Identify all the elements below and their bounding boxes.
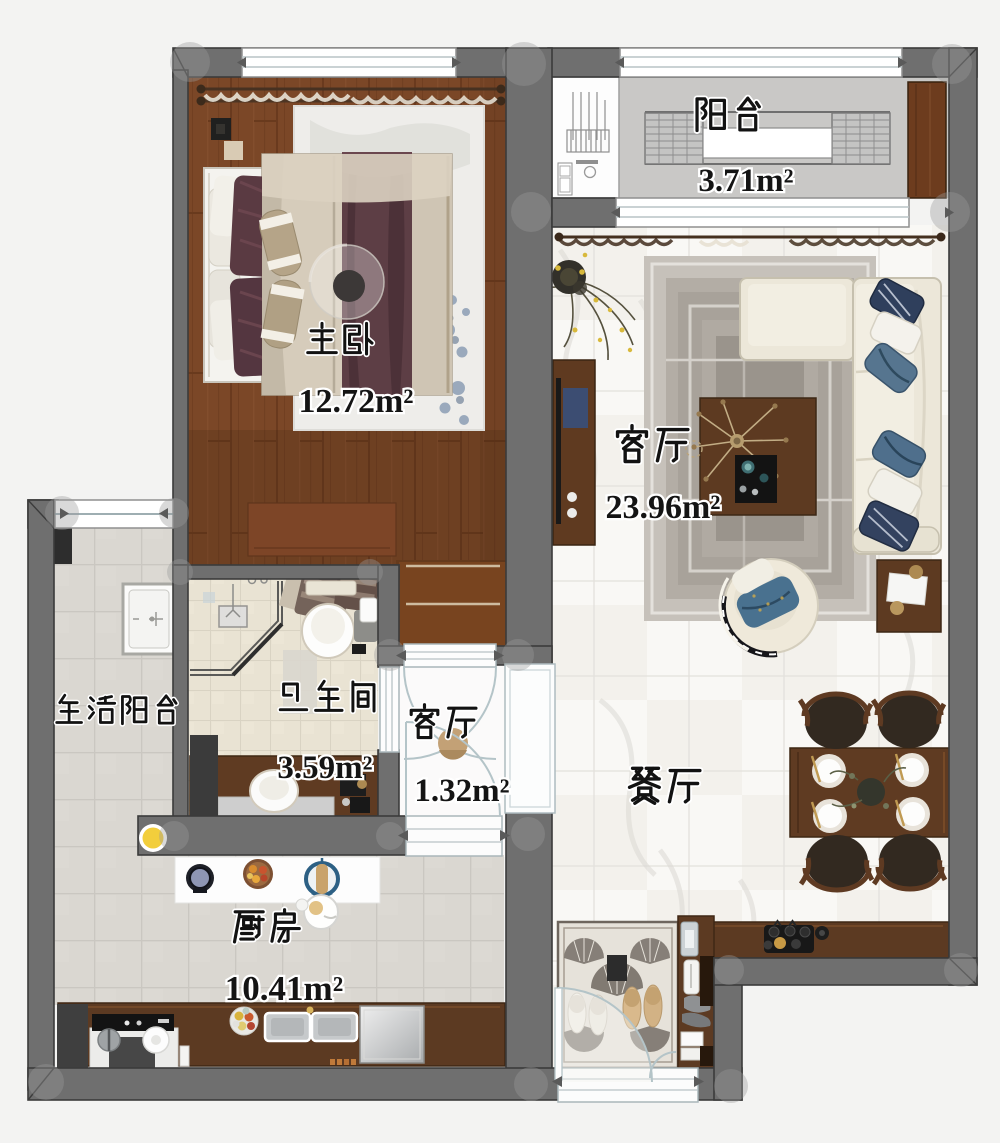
svg-text:10.41m²: 10.41m² [225, 969, 343, 1008]
svg-text:1.32m²: 1.32m² [414, 773, 509, 809]
svg-text:3.71m²: 3.71m² [698, 163, 793, 199]
svg-text:12.72m²: 12.72m² [298, 383, 413, 420]
svg-text:3.59m²: 3.59m² [277, 750, 372, 786]
svg-text:23.96m²: 23.96m² [605, 489, 720, 526]
